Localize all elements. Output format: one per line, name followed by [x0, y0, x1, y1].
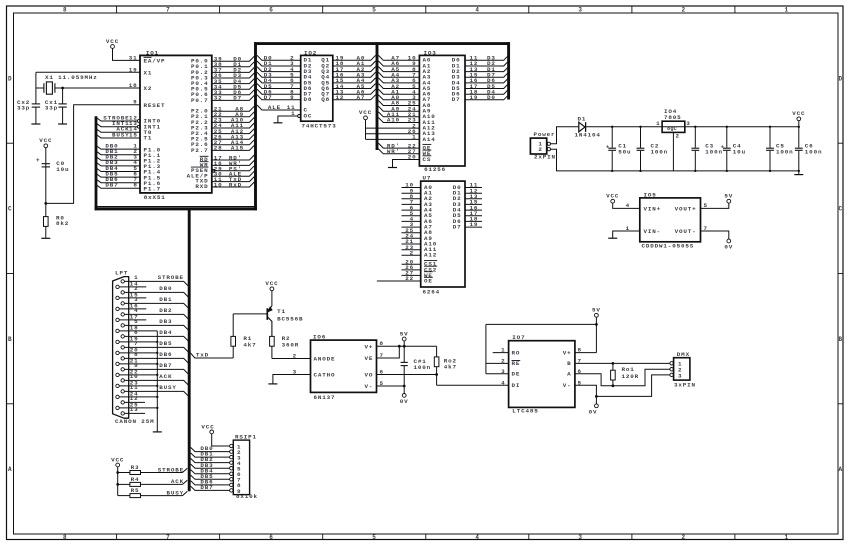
svg-text:6: 6 — [269, 534, 273, 541]
svg-text:Power: Power — [534, 131, 556, 138]
svg-text:10u: 10u — [733, 148, 746, 155]
svg-text:RSIP1: RSIP1 — [235, 434, 257, 441]
svg-text:4: 4 — [475, 534, 479, 541]
svg-text:IO2: IO2 — [304, 50, 317, 57]
svg-text:5V: 5V — [592, 307, 601, 314]
svg-text:50u: 50u — [618, 148, 631, 155]
svg-text:5: 5 — [372, 534, 376, 541]
svg-text:DB1: DB1 — [159, 296, 172, 303]
svg-text:U7: U7 — [423, 174, 432, 181]
svg-text:V-: V- — [563, 382, 572, 389]
svg-text:V+: V+ — [365, 343, 374, 350]
svg-text:19: 19 — [130, 336, 139, 343]
svg-text:STROBE: STROBE — [158, 466, 184, 473]
svg-text:A14: A14 — [423, 136, 436, 143]
svg-text:2: 2 — [410, 250, 414, 257]
svg-text:D7: D7 — [453, 224, 462, 231]
svg-text:DB4: DB4 — [159, 329, 172, 336]
svg-text:28: 28 — [214, 145, 223, 152]
svg-text:R4: R4 — [131, 476, 140, 483]
svg-text:D1: D1 — [578, 116, 587, 123]
svg-text:OE: OE — [424, 277, 433, 284]
svg-text:100n: 100n — [651, 148, 669, 155]
svg-text:19: 19 — [470, 94, 479, 101]
svg-text:2: 2 — [676, 133, 680, 140]
svg-text:0V: 0V — [589, 408, 598, 415]
svg-text:T1: T1 — [277, 308, 286, 315]
svg-text:P1.7: P1.7 — [144, 186, 162, 193]
svg-text:VIN-: VIN- — [644, 228, 662, 235]
svg-text:23: 23 — [130, 380, 139, 387]
svg-text:10u: 10u — [56, 166, 69, 173]
svg-text:DB7: DB7 — [159, 362, 172, 369]
svg-text:IO3: IO3 — [424, 50, 437, 57]
svg-text:4k7: 4k7 — [444, 364, 457, 371]
svg-text:8xX51: 8xX51 — [144, 194, 166, 201]
svg-text:0V: 0V — [724, 244, 733, 251]
svg-text:VCC: VCC — [106, 38, 119, 45]
svg-text:VCC: VCC — [201, 423, 214, 430]
svg-text:33p: 33p — [17, 105, 30, 112]
svg-text:OC: OC — [304, 112, 313, 119]
svg-text:R5: R5 — [131, 487, 140, 494]
svg-text:5V: 5V — [400, 330, 409, 337]
svg-text:20: 20 — [130, 347, 139, 354]
svg-text:6: 6 — [269, 7, 273, 14]
svg-text:IO6: IO6 — [313, 334, 326, 341]
svg-text:BUSY: BUSY — [159, 384, 177, 391]
svg-text:T1: T1 — [144, 135, 153, 142]
svg-text:360R: 360R — [282, 341, 300, 348]
svg-text:BC556B: BC556B — [277, 315, 303, 322]
svg-text:7: 7 — [704, 225, 708, 232]
svg-text:ALE: ALE — [268, 104, 281, 111]
svg-text:+: + — [606, 144, 610, 151]
svg-text:DB3: DB3 — [159, 318, 172, 325]
svg-text:1N4104: 1N4104 — [575, 131, 601, 138]
svg-text:8: 8 — [133, 182, 137, 189]
svg-text:A: A — [8, 466, 12, 473]
svg-text:D: D — [8, 75, 12, 82]
svg-text:2xPIN: 2xPIN — [534, 153, 556, 160]
svg-text:B: B — [8, 336, 12, 343]
svg-text:B: B — [567, 360, 571, 367]
svg-text:A7: A7 — [357, 94, 366, 101]
svg-text:5: 5 — [372, 7, 376, 14]
svg-text:3xPIN: 3xPIN — [674, 382, 696, 389]
svg-text:2: 2 — [681, 534, 685, 541]
svg-text:8: 8 — [63, 534, 67, 541]
svg-text:4k7: 4k7 — [243, 341, 256, 348]
svg-text:D0: D0 — [487, 94, 496, 101]
svg-text:LTC485: LTC485 — [512, 407, 538, 414]
svg-text:+: + — [721, 144, 725, 151]
svg-text:X1: X1 — [144, 70, 153, 77]
svg-text:4: 4 — [475, 7, 479, 14]
svg-text:CS: CS — [423, 156, 432, 163]
svg-text:100n: 100n — [805, 148, 823, 155]
svg-text:X2: X2 — [144, 85, 153, 92]
svg-text:A: A — [567, 371, 571, 378]
svg-text:120R: 120R — [622, 373, 640, 380]
svg-text:A: A — [839, 466, 843, 473]
svg-text:ACK: ACK — [171, 478, 184, 485]
svg-text:3: 3 — [686, 120, 690, 127]
svg-text:24: 24 — [130, 391, 139, 398]
svg-text:IO7: IO7 — [512, 334, 525, 341]
svg-text:ACK: ACK — [159, 373, 172, 380]
svg-text:V-: V- — [365, 383, 374, 390]
svg-text:RXD: RXD — [195, 183, 208, 190]
svg-text:1: 1 — [785, 534, 789, 541]
svg-text:33p: 33p — [45, 105, 58, 112]
svg-text:8gC: 8gC — [667, 126, 677, 132]
svg-text:5: 5 — [704, 202, 708, 209]
svg-text:RxD: RxD — [229, 182, 242, 189]
svg-text:16: 16 — [130, 303, 139, 310]
svg-text:2: 2 — [293, 352, 297, 359]
svg-text:VCC: VCC — [111, 456, 124, 463]
svg-text:Q8: Q8 — [321, 96, 330, 103]
svg-text:3: 3 — [578, 534, 582, 541]
svg-text:C: C — [8, 206, 12, 213]
svg-text:D7: D7 — [264, 94, 273, 101]
svg-text:5V: 5V — [724, 193, 733, 200]
svg-text:B: B — [839, 336, 843, 343]
svg-text:DB7: DB7 — [105, 182, 118, 189]
svg-text:3: 3 — [293, 368, 297, 375]
svg-text:BUSY: BUSY — [112, 131, 130, 138]
svg-text:D7: D7 — [452, 96, 461, 103]
svg-text:IO1: IO1 — [146, 50, 159, 57]
svg-text:100n: 100n — [776, 148, 794, 155]
svg-text:19: 19 — [470, 221, 479, 228]
svg-text:VIN+: VIN+ — [644, 206, 662, 213]
svg-text:DB0: DB0 — [159, 285, 172, 292]
svg-text:DB5: DB5 — [159, 340, 172, 347]
svg-text:8: 8 — [380, 340, 384, 347]
svg-text:7: 7 — [380, 352, 384, 359]
svg-text:VE: VE — [365, 355, 374, 362]
svg-text:+: + — [36, 157, 40, 164]
svg-text:EA/VP: EA/VP — [144, 58, 166, 65]
svg-text:V+: V+ — [563, 349, 572, 356]
svg-text:7805: 7805 — [664, 114, 682, 121]
svg-text:8: 8 — [63, 7, 67, 14]
svg-text:5: 5 — [380, 380, 384, 387]
svg-text:DMX: DMX — [677, 351, 690, 358]
svg-text:RO: RO — [512, 349, 521, 356]
svg-text:7: 7 — [166, 534, 170, 541]
svg-text:15: 15 — [129, 131, 138, 138]
svg-text:IO5: IO5 — [644, 191, 657, 198]
svg-text:DE: DE — [512, 371, 521, 378]
svg-text:4: 4 — [626, 202, 630, 209]
svg-text:100n: 100n — [414, 364, 432, 371]
svg-text:61256: 61256 — [424, 166, 446, 173]
svg-text:15: 15 — [130, 292, 139, 299]
svg-text:7: 7 — [166, 7, 170, 14]
svg-text:C: C — [839, 206, 843, 213]
svg-text:LPT: LPT — [115, 269, 128, 276]
svg-text:CANON 25M: CANON 25M — [115, 418, 154, 425]
svg-text:1: 1 — [785, 7, 789, 14]
svg-text:8k2: 8k2 — [56, 220, 69, 227]
svg-text:DB7: DB7 — [200, 484, 213, 491]
svg-text:ANODE: ANODE — [314, 356, 336, 363]
svg-text:RE: RE — [512, 360, 521, 367]
svg-text:2: 2 — [538, 146, 542, 153]
svg-text:A15: A15 — [231, 145, 244, 152]
svg-text:10: 10 — [214, 182, 223, 189]
svg-text:0V: 0V — [400, 398, 409, 405]
svg-text:D7: D7 — [233, 95, 242, 102]
svg-text:X1 11.059MHz: X1 11.059MHz — [45, 74, 98, 81]
svg-text:VCC: VCC — [606, 193, 619, 200]
svg-text:BUSY: BUSY — [166, 489, 184, 496]
svg-text:STROBE: STROBE — [158, 274, 184, 281]
svg-text:Ro1: Ro1 — [622, 366, 635, 373]
svg-text:VOUT-: VOUT- — [675, 228, 697, 235]
svg-text:3: 3 — [678, 372, 682, 379]
svg-text:VOUT+: VOUT+ — [675, 206, 697, 213]
svg-text:22: 22 — [130, 369, 139, 376]
svg-text:P2.7: P2.7 — [191, 147, 209, 154]
svg-text:RESET: RESET — [144, 102, 166, 109]
svg-text:17: 17 — [130, 314, 139, 321]
svg-text:DB2: DB2 — [159, 307, 172, 314]
svg-text:R3: R3 — [131, 464, 140, 471]
svg-text:74HCT573: 74HCT573 — [302, 122, 337, 129]
svg-text:1: 1 — [656, 120, 660, 127]
svg-text:1: 1 — [626, 225, 630, 232]
svg-text:9: 9 — [237, 488, 241, 495]
svg-text:VCC: VCC — [265, 280, 278, 287]
svg-text:25: 25 — [130, 402, 139, 409]
svg-text:14: 14 — [130, 281, 139, 288]
svg-text:VCC: VCC — [792, 110, 805, 117]
svg-text:6264: 6264 — [423, 289, 441, 296]
svg-text:P0.7: P0.7 — [191, 97, 209, 104]
svg-text:2: 2 — [681, 7, 685, 14]
svg-text:TxD: TxD — [196, 352, 209, 359]
svg-text:VCC: VCC — [39, 137, 52, 144]
svg-text:6N137: 6N137 — [314, 394, 336, 401]
svg-text:3: 3 — [578, 7, 582, 14]
svg-text:9: 9 — [290, 94, 294, 101]
svg-text:6: 6 — [380, 368, 384, 375]
svg-text:D: D — [839, 75, 843, 82]
svg-text:CDDDW1-0505S: CDDDW1-0505S — [642, 243, 695, 250]
svg-text:CATHO: CATHO — [314, 372, 336, 379]
svg-text:DB6: DB6 — [159, 351, 172, 358]
svg-text:A12: A12 — [424, 252, 437, 259]
svg-text:DI: DI — [512, 382, 521, 389]
svg-text:VO: VO — [365, 372, 374, 379]
svg-text:32: 32 — [214, 95, 223, 102]
svg-text:18: 18 — [130, 325, 139, 332]
svg-text:VCC: VCC — [359, 109, 372, 116]
svg-text:21: 21 — [130, 358, 139, 365]
svg-text:D8: D8 — [304, 96, 313, 103]
svg-text:12: 12 — [336, 94, 345, 101]
svg-text:1: 1 — [291, 110, 295, 117]
